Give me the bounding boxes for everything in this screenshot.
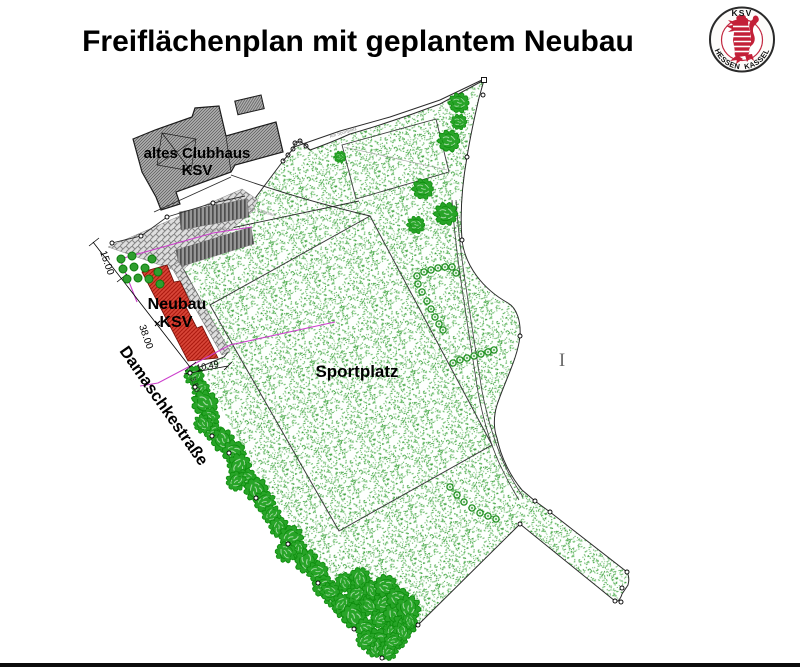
svg-text:KSV: KSV [182,162,213,179]
svg-text:Neubau: Neubau [148,296,207,313]
svg-text:KSV: KSV [160,314,193,331]
svg-text:KSV: KSV [731,8,752,18]
svg-text:altes Clubhaus: altes Clubhaus [144,145,251,162]
svg-text:Sportplatz: Sportplatz [315,362,398,381]
svg-text:I: I [559,350,565,371]
svg-text:Freiflächenplan mit geplantem: Freiflächenplan mit geplantem Neubau [82,25,634,58]
